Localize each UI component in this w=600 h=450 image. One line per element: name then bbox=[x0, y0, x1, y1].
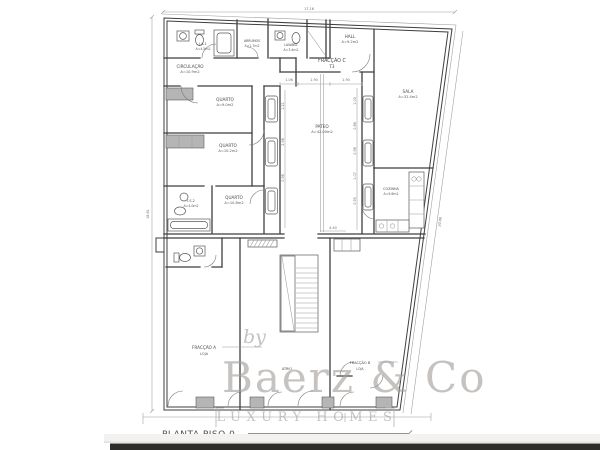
room-label-quarto3-name: QUARTO bbox=[225, 195, 243, 200]
pateo-detail: 1.06 1.90 1.90 1.21 2.98 0.98 1.03 0.86 … bbox=[280, 74, 362, 232]
watermark: by Baerz & Co LUXURY HOMES bbox=[216, 326, 486, 427]
fraction-a-label: FRACÇÃO A bbox=[192, 345, 216, 350]
closet-diagonal bbox=[308, 31, 325, 55]
svg-text:0.98: 0.98 bbox=[281, 174, 285, 182]
room-label-hall-area: A=9.2m2 bbox=[342, 40, 359, 44]
shop-a-wc-fixtures bbox=[174, 246, 205, 262]
watermark-brand: Baerz & Co bbox=[222, 353, 486, 402]
room-label-is2-area: A=4.0m2 bbox=[183, 204, 198, 208]
dim-right-height: 20.00 bbox=[437, 217, 442, 227]
pateo-left-window-wall bbox=[264, 86, 280, 233]
room-label-arrumos-name: ARRUMOS bbox=[244, 39, 260, 43]
room-label-circulacao-area: A=10.9m2 bbox=[180, 70, 199, 74]
svg-text:1.07: 1.07 bbox=[353, 172, 357, 180]
room-label-quarto1-name: QUARTO bbox=[216, 97, 234, 102]
svg-text:2.98: 2.98 bbox=[281, 138, 285, 146]
room-label-sala-area: A=32.4m2 bbox=[398, 95, 417, 99]
room-label-quarto2-name: QUARTO bbox=[219, 143, 237, 148]
dim-atrio-width: 4.40 bbox=[329, 226, 337, 230]
fraction-a-type: LOJA bbox=[200, 352, 209, 356]
room-label-lavand-name: LAVAND. bbox=[284, 43, 298, 47]
room-label-is2-name: I.S.2 bbox=[187, 199, 194, 203]
room-label-pateo-name: PATEO bbox=[315, 124, 329, 129]
room-label-arrumos-area: A=1.7m2 bbox=[244, 44, 259, 48]
toilet-tank-icon bbox=[174, 253, 179, 262]
kitchen-counter bbox=[376, 172, 424, 232]
watermark-tagline: LUXURY HOMES bbox=[217, 410, 398, 425]
dim-left-height: 18.61 bbox=[146, 209, 150, 219]
photo-edge-dark bbox=[110, 444, 600, 450]
svg-text:0.86: 0.86 bbox=[353, 122, 357, 130]
staircase-icon bbox=[280, 255, 318, 332]
pateo-dim: 1.90 bbox=[310, 78, 318, 82]
room-label-is1-area: A=4.5m2 bbox=[195, 47, 210, 51]
floor-plan-page: 17.16 18.61 20.00 bbox=[0, 0, 600, 450]
pateo-dim: 1.90 bbox=[342, 78, 350, 82]
laundry-fixtures bbox=[275, 31, 300, 44]
dim-top-width: 17.16 bbox=[304, 7, 314, 11]
svg-text:0.95: 0.95 bbox=[353, 197, 357, 205]
pateo-dim: 1.06 bbox=[285, 78, 293, 82]
room-label-circulacao-name: CIRCULAÇÃO bbox=[176, 64, 204, 69]
room-label-quarto3-area: A=10.8m2 bbox=[224, 201, 243, 205]
room-label-cozinha-area: A=9.8m2 bbox=[383, 192, 398, 196]
toilet-icon bbox=[180, 254, 191, 262]
room-label-pateo-area: A=42.00m2 bbox=[311, 130, 333, 134]
room-label-quarto1-area: A=9.0m2 bbox=[217, 103, 234, 107]
room-label-cozinha-name: COZINHA bbox=[383, 187, 399, 191]
wardrobe-icon bbox=[166, 135, 204, 148]
room-label-hall-name: HALL bbox=[345, 34, 356, 39]
toilet-tank-icon bbox=[195, 30, 204, 34]
svg-text:1.03: 1.03 bbox=[353, 97, 357, 105]
wardrobe-icon bbox=[166, 88, 193, 100]
fraction-c-label: FRACÇÃO C bbox=[318, 57, 346, 64]
photo-edge bbox=[104, 434, 600, 450]
room-label-is1-name: I.S.1 bbox=[199, 42, 206, 46]
door-arcs-upper bbox=[181, 44, 375, 219]
room-label-sala-name: SALA bbox=[403, 89, 414, 94]
svg-text:0.98: 0.98 bbox=[353, 147, 357, 155]
laundry-sink-icon bbox=[292, 33, 300, 44]
floor-plan-drawing: 17.16 18.61 20.00 bbox=[0, 0, 600, 450]
wall-recess bbox=[156, 238, 164, 252]
wall-hatch bbox=[248, 240, 277, 247]
fraction-c-type: T3 bbox=[328, 64, 335, 69]
toilet-icon bbox=[175, 207, 186, 215]
room-label-quarto2-area: A=10.2m2 bbox=[218, 149, 237, 153]
watermark-by: by bbox=[243, 326, 266, 348]
svg-text:1.21: 1.21 bbox=[281, 102, 285, 110]
room-label-lavand-area: A=3.4m2 bbox=[283, 48, 298, 52]
shop-b-fixtures bbox=[334, 239, 360, 251]
facade-pier bbox=[196, 397, 214, 408]
pateo-right-window-wall bbox=[362, 72, 374, 233]
